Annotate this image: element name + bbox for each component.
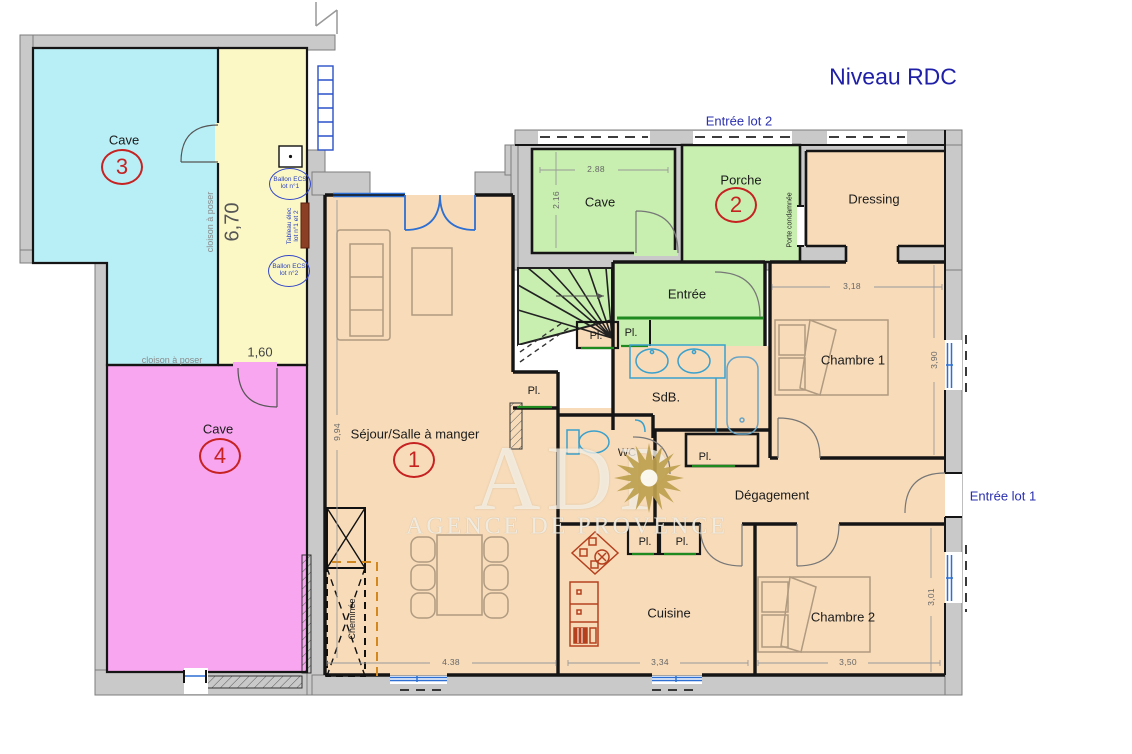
room-entree	[613, 262, 765, 346]
stairs	[518, 268, 612, 372]
room-cave-3	[33, 48, 218, 365]
room-cave-4	[107, 365, 307, 672]
room-wc-corridor	[558, 408, 655, 524]
room-degagement	[655, 430, 945, 524]
floorplan-page: Niveau RDC Entrée lot 2 Entrée lot 1 Cav…	[0, 0, 1132, 754]
room-chambre1	[770, 262, 945, 458]
room-porche	[682, 145, 800, 262]
room-corridor-yellow	[218, 48, 307, 365]
room-cave-lot2	[532, 149, 675, 253]
room-cuisine	[558, 524, 755, 675]
floorplan-canvas	[0, 0, 1132, 754]
